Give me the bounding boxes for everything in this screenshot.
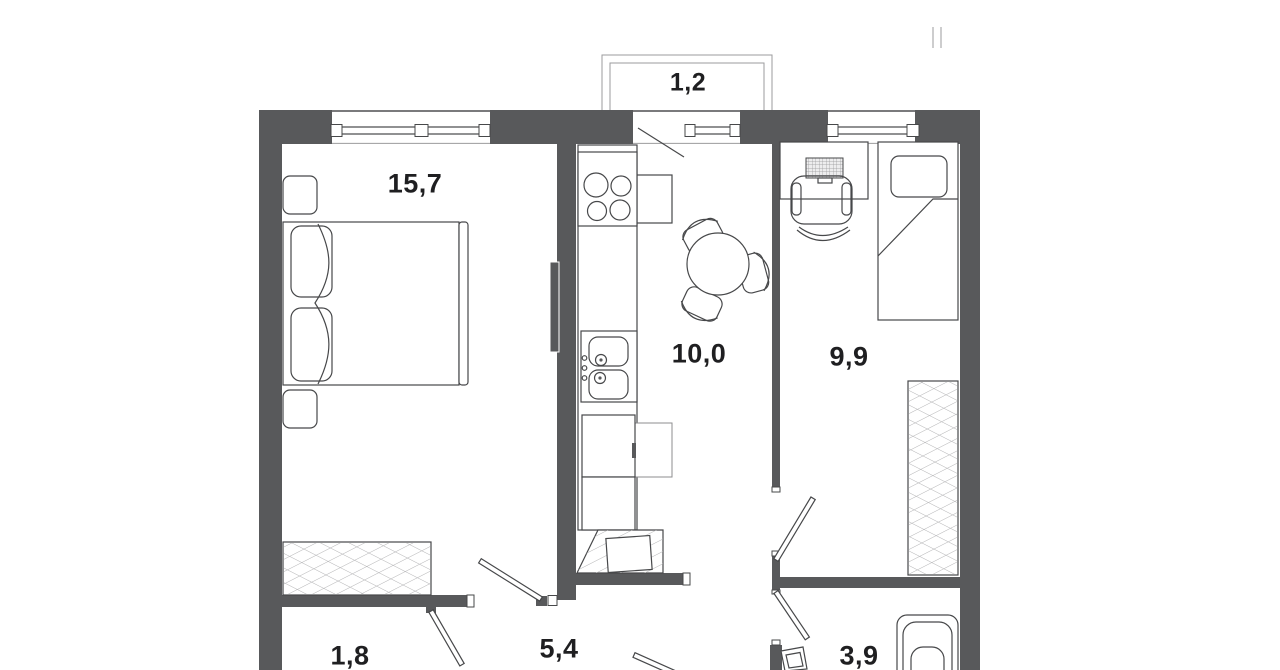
door-swing-icon <box>774 591 809 640</box>
room-label-living: 15,7 <box>388 169 443 200</box>
dining-table-icon <box>677 212 774 326</box>
floor-plan-drawing <box>0 0 1280 670</box>
nightstand-icon <box>283 176 317 214</box>
single-bed-icon <box>878 142 958 320</box>
refrigerator-icon <box>582 415 672 477</box>
wardrobe-icon <box>283 542 431 595</box>
room-label-bedroom: 9,9 <box>829 342 868 373</box>
room-label-kitchen: 10,0 <box>672 339 727 370</box>
wall-right <box>960 110 980 670</box>
room-label-balcony: 1,2 <box>670 69 706 98</box>
wall-kitchen-bottom <box>576 573 683 585</box>
room-label-bathroom: 3,9 <box>839 641 878 670</box>
nightstand-icon <box>283 390 317 428</box>
kitchen-cabinet-icon <box>582 477 635 530</box>
washing-machine-icon <box>577 530 663 573</box>
wall-left <box>259 110 282 670</box>
room-label-hallway: 5,4 <box>539 634 578 665</box>
wall-bathroom-top <box>780 577 960 588</box>
wardrobe-icon <box>908 381 958 575</box>
wall-living-kitchen <box>557 144 576 600</box>
door-swing-icon <box>633 653 681 670</box>
room-label-storage: 1,8 <box>330 641 369 670</box>
wall-bathroom-left <box>770 645 782 670</box>
washbasin-icon <box>781 647 807 670</box>
double-bed-icon <box>283 222 468 385</box>
bathtub-icon <box>897 615 958 670</box>
door-swing-icon <box>479 559 543 601</box>
door-swing-icon <box>774 497 815 561</box>
window-opening <box>332 112 490 144</box>
wall-kitchen-bedroom <box>772 144 780 487</box>
stove-icon <box>578 152 637 226</box>
floor-plan: 15,7 1,2 10,0 9,9 5,4 1,8 3,9 <box>0 0 1280 670</box>
radiator-icon <box>550 262 559 352</box>
kitchen-sink-icon <box>581 331 637 402</box>
vent-pipe-icon <box>933 27 941 48</box>
window-opening <box>828 112 915 144</box>
door-swing-icon <box>429 610 464 666</box>
